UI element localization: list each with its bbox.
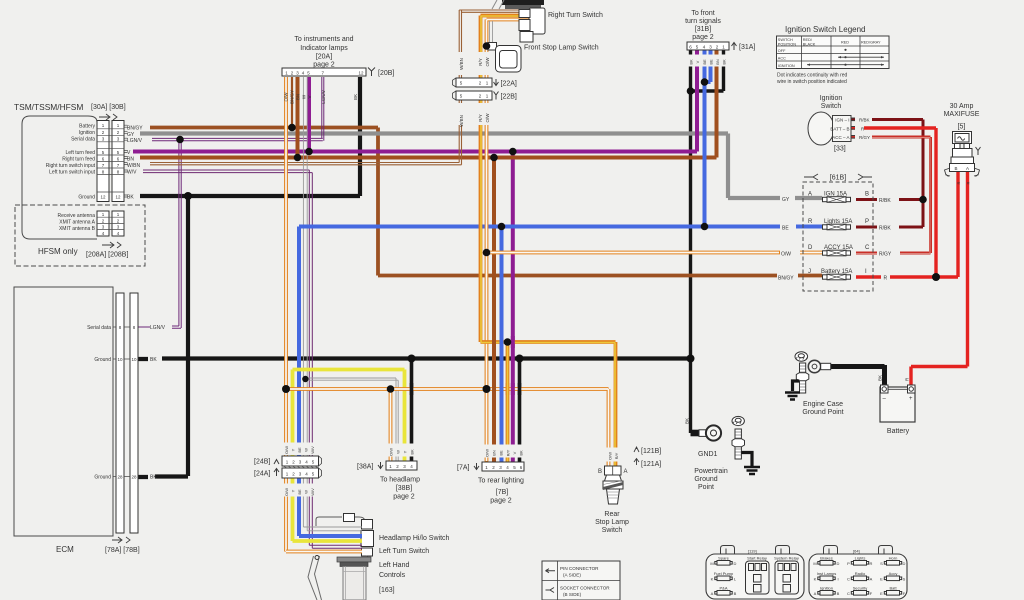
svg-text:Powertrain: Powertrain (694, 468, 728, 475)
svg-text:R/BK: R/BK (859, 118, 870, 123)
svg-text:BE: BE (709, 59, 714, 65)
svg-text:[33]: [33] (834, 146, 846, 153)
svg-text:[30A] [30B]: [30A] [30B] (91, 104, 126, 111)
svg-text:Battery: Battery (887, 428, 910, 435)
svg-text:V: V (307, 95, 312, 98)
svg-text:BK: BK (689, 59, 694, 65)
svg-text:Accy: Accy (889, 571, 898, 576)
svg-text:Engine Case: Engine Case (803, 401, 843, 408)
svg-text:(A SIDE): (A SIDE) (563, 573, 581, 578)
svg-text:[121A]: [121A] (641, 461, 661, 468)
svg-text:O/W: O/W (485, 57, 490, 67)
svg-text:O/W: O/W (284, 446, 289, 454)
svg-text:Batt: Batt (889, 586, 897, 591)
svg-text:BE: BE (297, 489, 302, 495)
svg-text:Lights: Lights (855, 556, 866, 561)
svg-text:wire in switch position indica: wire in switch position indicated (777, 79, 847, 85)
svg-text:O/W: O/W (284, 92, 289, 102)
svg-text:V: V (512, 451, 517, 454)
svg-text:BK: BK (878, 375, 883, 381)
svg-text:R/GY: R/GY (859, 135, 870, 140)
svg-text:B: B (954, 166, 957, 171)
svg-text:TSM/TSSM/HFSM: TSM/TSSM/HFSM (14, 102, 83, 112)
svg-text:BN: BN (127, 157, 134, 163)
svg-text:PIN CONNECTOR: PIN CONNECTOR (560, 566, 599, 571)
svg-text:R/Y: R/Y (478, 58, 483, 66)
svg-text:RED/GRAY: RED/GRAY (861, 41, 881, 45)
svg-text:BK: BK (722, 59, 727, 65)
svg-text:W/BN: W/BN (459, 115, 464, 127)
svg-text:Spare: Spare (718, 556, 729, 561)
svg-text:Radio: Radio (855, 571, 866, 576)
svg-text:E: E (880, 577, 883, 582)
svg-text:12: 12 (100, 195, 106, 200)
svg-text:A: A (870, 577, 873, 582)
svg-text:R: R (870, 561, 873, 566)
svg-text:[78A] [78B]: [78A] [78B] (105, 547, 140, 554)
svg-text:Ground: Ground (94, 475, 111, 481)
svg-text:R: R (966, 181, 971, 184)
svg-text:Right Turn Switch: Right Turn Switch (548, 12, 603, 19)
svg-text:[119]: [119] (748, 549, 757, 554)
svg-text:R: R (884, 276, 888, 282)
svg-text:W: W (304, 490, 309, 494)
svg-text:GND1: GND1 (698, 451, 718, 458)
svg-text:Left Turn Switch: Left Turn Switch (379, 548, 429, 555)
svg-text:Right turn switch input: Right turn switch input (46, 163, 96, 169)
svg-text:Serial data: Serial data (87, 325, 111, 331)
svg-text:O/W: O/W (608, 452, 613, 460)
svg-text:B: B (837, 591, 840, 596)
svg-text:[38A]: [38A] (357, 464, 373, 471)
svg-text:D: D (734, 561, 737, 566)
svg-text:W/BN: W/BN (459, 58, 464, 70)
svg-text:Ground: Ground (94, 357, 111, 363)
svg-text:XMIT antenna B: XMIT antenna B (59, 226, 96, 232)
svg-text:[31A]: [31A] (739, 44, 755, 51)
svg-text:BN: BN (715, 59, 720, 65)
svg-text:C: C (865, 245, 870, 251)
svg-text:W/V: W/V (127, 170, 137, 176)
svg-text:R/GY: R/GY (879, 252, 892, 258)
svg-text:BE: BE (499, 450, 504, 456)
svg-text:M: M (813, 561, 816, 566)
svg-text:[7B]: [7B] (496, 489, 509, 496)
svg-text:A: A (624, 469, 628, 475)
svg-text:BN: BN (492, 450, 497, 456)
svg-text:RED: RED (841, 41, 849, 45)
svg-text:BLACK: BLACK (803, 42, 816, 46)
svg-text:Inst Lamps: Inst Lamps (817, 571, 837, 576)
svg-text:Battery: Battery (79, 123, 95, 129)
svg-text:A: A (814, 591, 817, 596)
svg-text:Security: Security (853, 586, 867, 591)
svg-text:Brakes: Brakes (820, 556, 832, 561)
svg-text:BN/GY: BN/GY (290, 90, 295, 104)
svg-text:XMIT antenna A: XMIT antenna A (59, 220, 95, 226)
svg-text:Ground: Ground (78, 194, 95, 200)
svg-text:Ignition Switch Legend: Ignition Switch Legend (785, 25, 866, 34)
svg-text:Stop Lamp: Stop Lamp (595, 519, 629, 526)
svg-text:R/Y: R/Y (614, 452, 619, 459)
svg-text:S: S (880, 561, 883, 566)
svg-text:B: B (598, 469, 602, 475)
svg-text:A: A (711, 591, 714, 596)
svg-text:K: K (814, 577, 817, 582)
svg-text:BN: BN (296, 94, 301, 100)
svg-text:BE: BE (782, 226, 789, 232)
svg-text:BK: BK (519, 450, 524, 456)
svg-text:J: J (808, 269, 811, 275)
svg-text:+: + (909, 396, 913, 402)
svg-text:R: R (956, 181, 961, 184)
svg-text:GY: GY (782, 197, 790, 203)
svg-text:O/W: O/W (485, 449, 490, 457)
svg-text:Start Relay: Start Relay (747, 556, 767, 561)
svg-text:BK: BK (353, 94, 358, 100)
svg-text:Front Stop Lamp Switch: Front Stop Lamp Switch (524, 45, 599, 52)
svg-text:C: C (847, 577, 850, 582)
svg-text:[121B]: [121B] (641, 448, 661, 455)
svg-text:Receive antenna: Receive antenna (57, 213, 95, 219)
svg-text:K: K (711, 577, 714, 582)
svg-text:BN/GY: BN/GY (778, 276, 794, 282)
svg-text:To headlamp: To headlamp (380, 477, 420, 484)
svg-text:10: 10 (131, 357, 137, 362)
svg-text:Ground: Ground (694, 476, 717, 483)
svg-text:[64]: [64] (853, 549, 860, 554)
svg-text:System Relay: System Relay (774, 556, 799, 561)
svg-text:Ground Point: Ground Point (802, 409, 843, 416)
svg-text:M: M (710, 561, 713, 566)
svg-text:28: 28 (131, 475, 137, 480)
svg-text:12: 12 (358, 71, 364, 76)
svg-text:Dot indicates continuity with: Dot indicates continuity with red (777, 73, 848, 79)
svg-text:ECM: ECM (56, 545, 74, 554)
svg-text:R/BK: R/BK (879, 226, 891, 232)
svg-text:P: P (847, 561, 850, 566)
svg-text:Indicator lamps: Indicator lamps (300, 45, 348, 52)
svg-text:[7A]: [7A] (457, 465, 470, 472)
svg-text:[20B]: [20B] (378, 70, 394, 77)
svg-text:page 2: page 2 (313, 62, 335, 69)
svg-text:Y: Y (291, 448, 296, 451)
svg-text:IGN – I: IGN – I (835, 118, 849, 123)
svg-text:BN/GY: BN/GY (127, 126, 143, 132)
svg-text:Y: Y (403, 450, 408, 453)
svg-text:O/W: O/W (284, 488, 289, 496)
svg-text:D: D (903, 561, 906, 566)
svg-text:I: I (837, 577, 838, 582)
svg-text:Switch: Switch (602, 527, 623, 534)
svg-text:O/W: O/W (485, 113, 490, 123)
svg-text:[5]: [5] (958, 124, 966, 131)
svg-text:R/Y: R/Y (506, 449, 511, 456)
svg-text:POSITION: POSITION (778, 42, 796, 46)
svg-text:S: S (903, 577, 906, 582)
svg-text:P: P (865, 219, 869, 225)
svg-text:W: W (304, 448, 309, 452)
svg-text:Right turn feed: Right turn feed (62, 157, 95, 163)
svg-text:[24B]: [24B] (254, 459, 270, 466)
svg-text:Rear: Rear (604, 511, 620, 518)
svg-text:[24A]: [24A] (254, 471, 270, 478)
svg-text:(B SIDE): (B SIDE) (563, 592, 582, 597)
svg-text:R/BK: R/BK (879, 198, 891, 204)
svg-text:Ignition: Ignition (79, 130, 95, 136)
svg-text:BE: BE (702, 59, 707, 65)
svg-text:30 Amp: 30 Amp (950, 103, 974, 110)
svg-text:Headlamp Hi/lo Switch: Headlamp Hi/lo Switch (379, 535, 450, 542)
svg-text:B: B (734, 591, 737, 596)
svg-text:turn signals: turn signals (685, 18, 721, 25)
svg-text:O/W: O/W (781, 252, 791, 258)
svg-text:28: 28 (117, 475, 123, 480)
svg-text:[38B]: [38B] (396, 485, 412, 492)
svg-text:P&A: P&A (719, 586, 727, 591)
svg-text:ACC: ACC (778, 56, 786, 60)
svg-text:OFF: OFF (778, 49, 786, 53)
svg-text:BK: BK (150, 475, 157, 481)
svg-text:BATT – B: BATT – B (830, 126, 849, 131)
svg-text:Ignition: Ignition (820, 586, 833, 591)
svg-text:Left turn switch input: Left turn switch input (49, 170, 95, 176)
svg-text:[20A]: [20A] (316, 54, 332, 61)
svg-text:V: V (695, 60, 700, 63)
svg-text:BE: BE (297, 447, 302, 453)
svg-text:page 2: page 2 (692, 34, 714, 41)
svg-text:HFSM only: HFSM only (38, 247, 78, 256)
svg-text:[31B]: [31B] (695, 26, 711, 33)
svg-text:Controls: Controls (379, 572, 406, 579)
svg-text:R: R (808, 219, 813, 225)
svg-text:Horn: Horn (889, 556, 898, 561)
svg-text:BK: BK (127, 194, 134, 200)
svg-text:[61B]: [61B] (830, 175, 846, 182)
svg-text:LGN/V: LGN/V (127, 138, 143, 144)
svg-text:Left Hand: Left Hand (379, 562, 409, 569)
svg-text:Switch: Switch (821, 103, 842, 110)
svg-text:W/V: W/V (310, 488, 315, 496)
svg-text:LGN/V: LGN/V (150, 325, 166, 331)
svg-text:[163]: [163] (379, 587, 395, 594)
svg-text:D: D (808, 245, 813, 251)
svg-text:IGNITION: IGNITION (778, 64, 795, 68)
svg-text:W: W (396, 450, 401, 454)
svg-text:ACC – A: ACC – A (832, 135, 849, 140)
svg-text:Serial data: Serial data (71, 136, 95, 142)
svg-text:Left turn feed: Left turn feed (66, 150, 96, 156)
svg-text:page 2: page 2 (490, 498, 512, 505)
svg-text:D: D (837, 561, 840, 566)
svg-text:BK: BK (410, 449, 415, 455)
svg-text:Fuel Pump: Fuel Pump (714, 571, 734, 576)
svg-text:R/Y: R/Y (478, 114, 483, 122)
svg-text:W/V: W/V (310, 446, 315, 454)
svg-text:Point: Point (698, 484, 714, 491)
svg-text:E: E (880, 591, 883, 596)
svg-text:W/BN: W/BN (127, 163, 140, 169)
svg-text:A: A (966, 166, 969, 171)
svg-text:To front: To front (691, 10, 714, 17)
svg-text:To instruments and: To instruments and (294, 36, 353, 43)
svg-text:10: 10 (117, 357, 123, 362)
svg-text:C: C (847, 591, 850, 596)
svg-text:To rear lighting: To rear lighting (478, 478, 524, 485)
svg-text:BK: BK (150, 357, 157, 363)
svg-text:[208A] [208B]: [208A] [208B] (86, 252, 128, 259)
svg-text:LGN/V: LGN/V (321, 90, 326, 104)
svg-text:B: B (865, 191, 869, 197)
svg-text:12: 12 (115, 195, 121, 200)
svg-text:MAXIFUSE: MAXIFUSE (944, 111, 980, 118)
svg-text:page 2: page 2 (393, 494, 415, 501)
svg-text:Ignition: Ignition (820, 95, 843, 102)
svg-text:A: A (808, 191, 812, 197)
svg-text:O/W: O/W (389, 448, 394, 456)
svg-text:Y: Y (291, 489, 296, 492)
svg-text:SOCKET CONNECTOR: SOCKET CONNECTOR (560, 586, 610, 591)
svg-text:[22B]: [22B] (501, 94, 517, 101)
svg-text:BK: BK (685, 418, 690, 424)
svg-text:[22A]: [22A] (501, 81, 517, 88)
